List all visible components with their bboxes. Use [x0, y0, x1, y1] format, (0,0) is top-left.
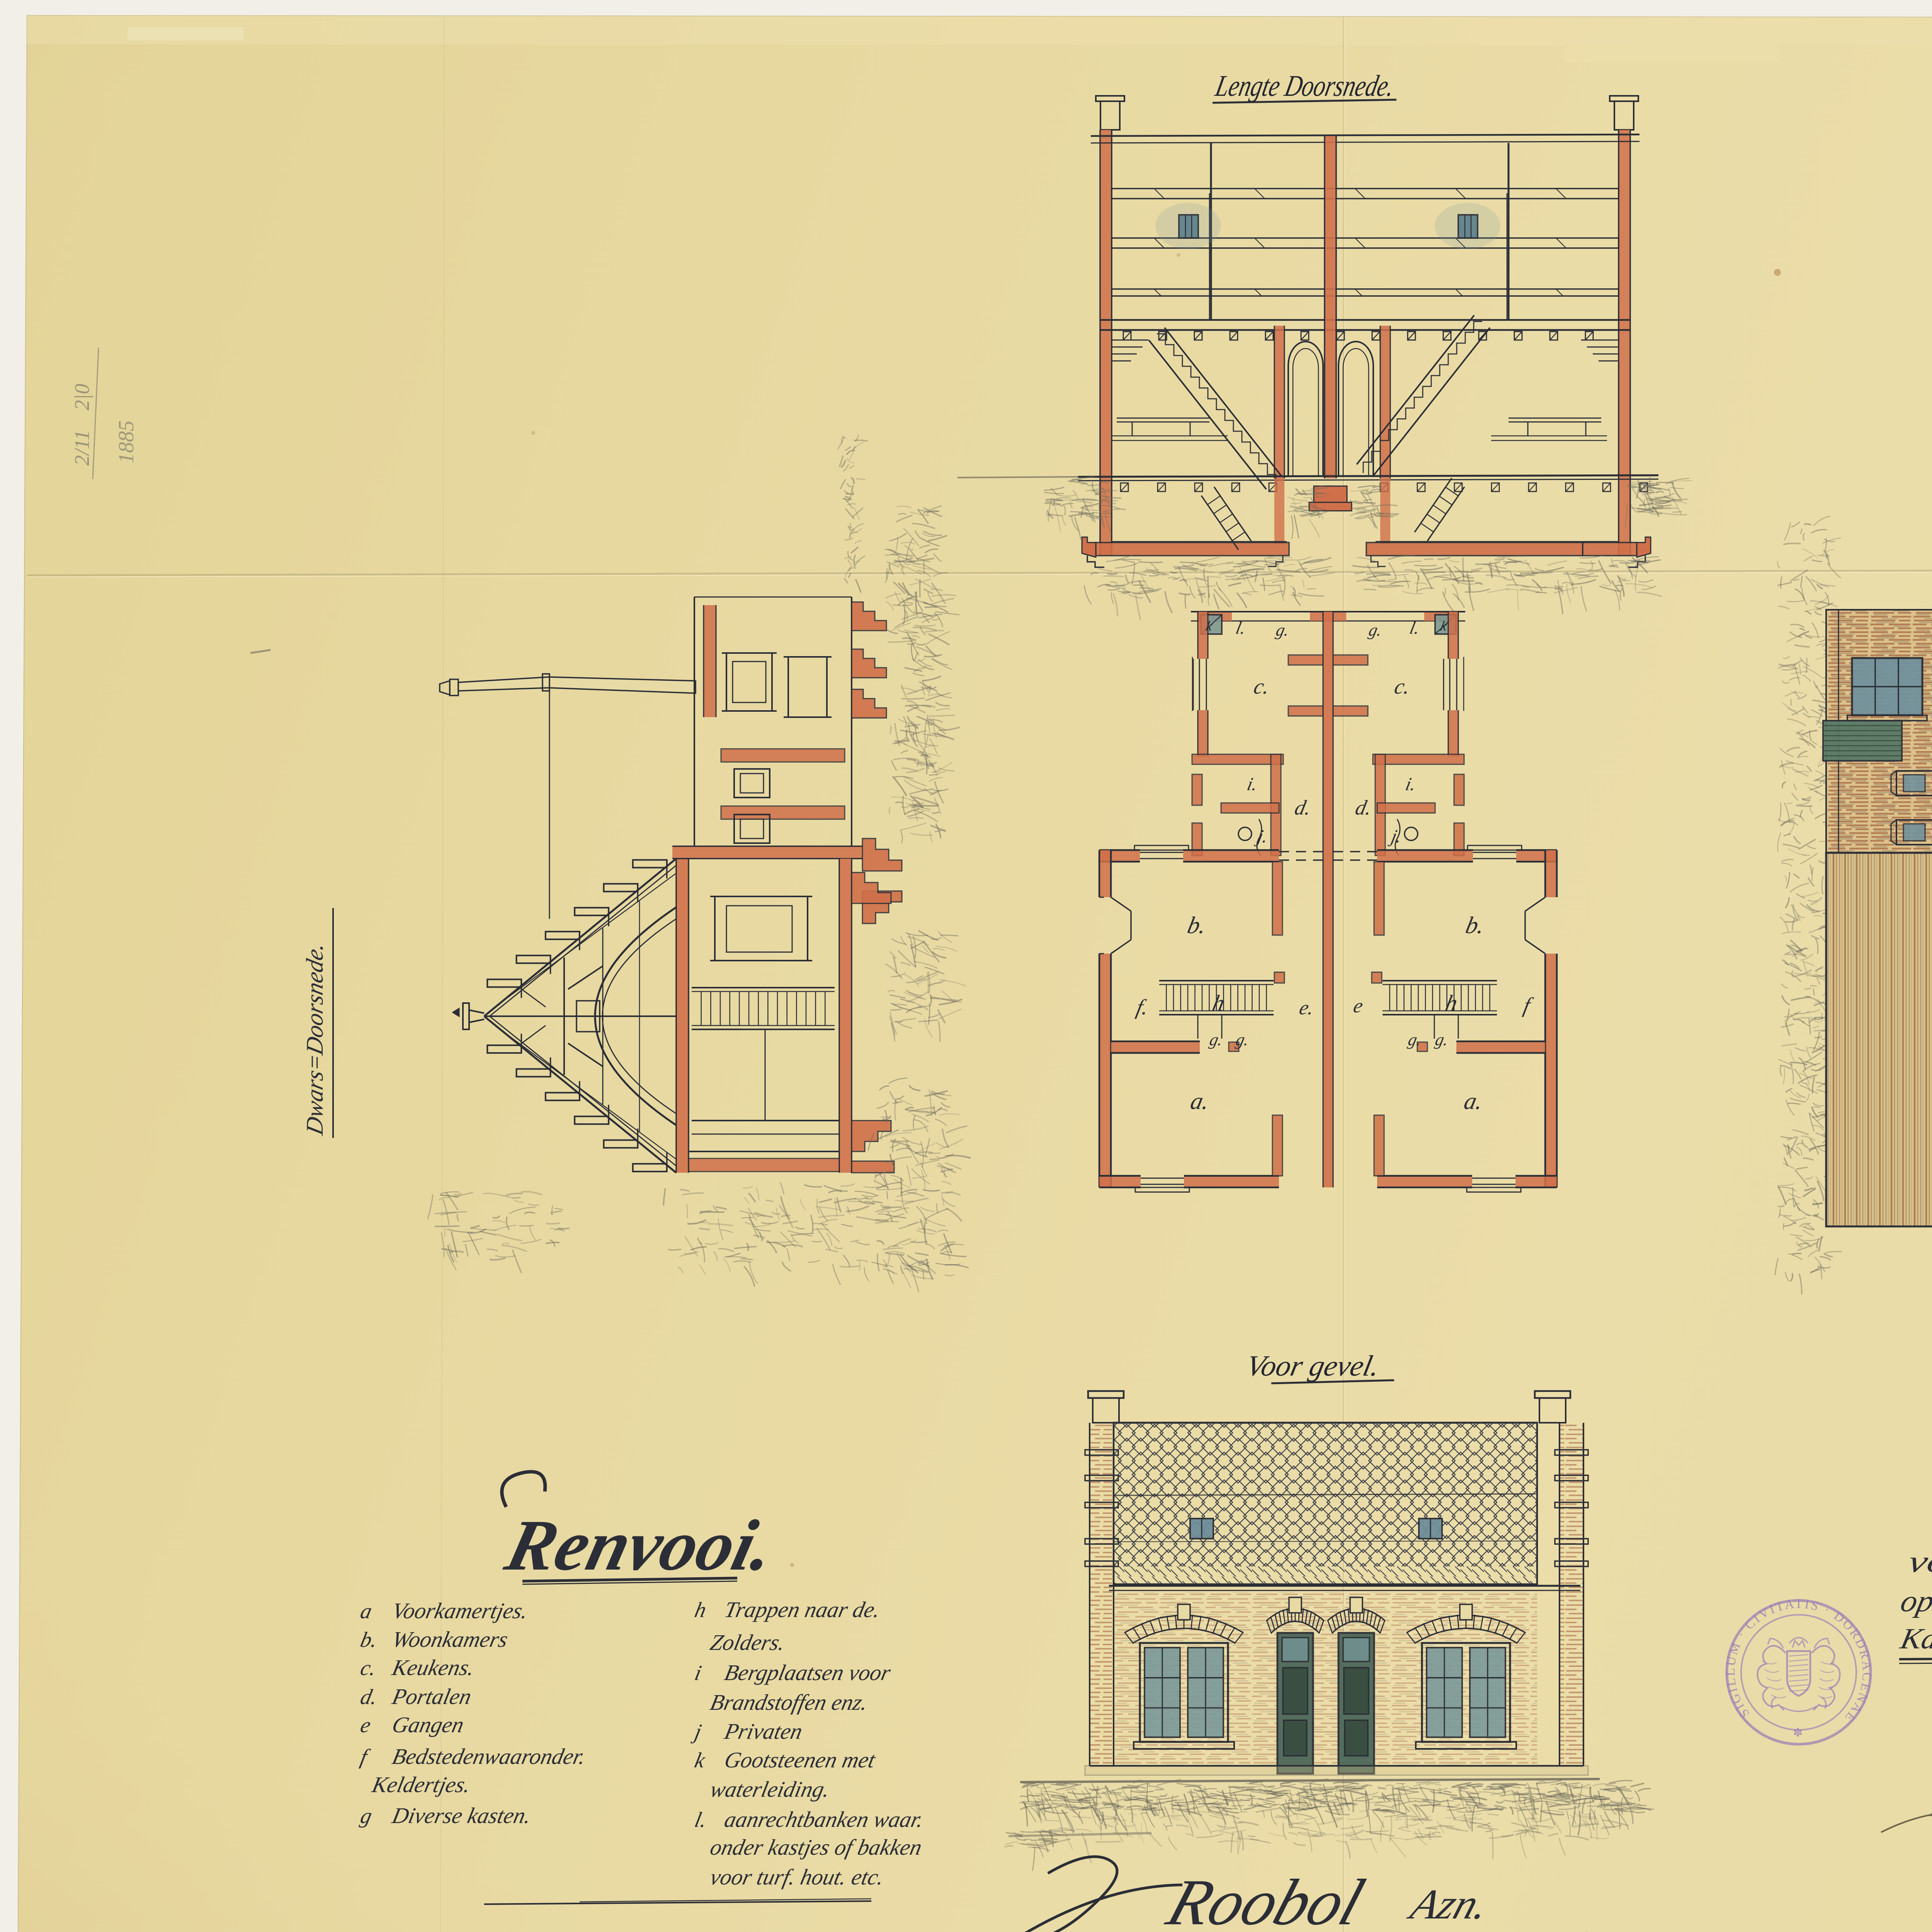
svg-text:Zolders.: Zolders. — [708, 1630, 787, 1655]
svg-text:Roobol: Roobol — [1159, 1866, 1372, 1932]
svg-text:waterleiding.: waterleiding. — [708, 1777, 832, 1802]
svg-text:Voor gevel.: Voor gevel. — [1243, 1350, 1383, 1382]
svg-text:voor turf. hout. etc.: voor turf. hout. etc. — [708, 1865, 886, 1889]
svg-text:Bergplaatsen voor: Bergplaatsen voor — [722, 1660, 893, 1685]
svg-text:aanrechtbanken waar.: aanrechtbanken waar. — [722, 1807, 926, 1832]
svg-text:Keukens.: Keukens. — [389, 1655, 477, 1680]
svg-text:2|0: 2|0 — [70, 384, 94, 410]
svg-text:1885: 1885 — [114, 420, 138, 464]
svg-text:Lengte Doorsnede.: Lengte Doorsnede. — [1212, 70, 1397, 103]
svg-text:Privaten: Privaten — [722, 1719, 804, 1744]
svg-text:Voorkamertjes.: Voorkamertjes. — [390, 1599, 530, 1623]
svg-text:Renvooi.: Renvooi. — [498, 1505, 783, 1586]
svg-text:2/11: 2/11 — [70, 430, 94, 466]
svg-text:Gangen: Gangen — [390, 1713, 466, 1737]
svg-text:Diverse kasten.: Diverse kasten. — [389, 1803, 533, 1828]
svg-text:onder kastjes of bakken: onder kastjes of bakken — [708, 1835, 924, 1860]
svg-text:Woonkamers: Woonkamers — [390, 1627, 510, 1652]
svg-text:Portalen: Portalen — [389, 1684, 474, 1709]
svg-text:Bedstedenwaaronder.: Bedstedenwaaronder. — [390, 1744, 588, 1769]
svg-text:✽: ✽ — [1793, 1726, 1803, 1739]
svg-text:Keldertjes.: Keldertjes. — [369, 1772, 473, 1797]
svg-text:Dwars=Doorsnede.: Dwars=Doorsnede. — [301, 940, 328, 1138]
svg-text:Brandstoffen enz.: Brandstoffen enz. — [708, 1690, 870, 1715]
svg-text:Gootsteenen met: Gootsteenen met — [722, 1748, 878, 1772]
svg-text:Trappen naar de.: Trappen naar de. — [722, 1597, 883, 1622]
